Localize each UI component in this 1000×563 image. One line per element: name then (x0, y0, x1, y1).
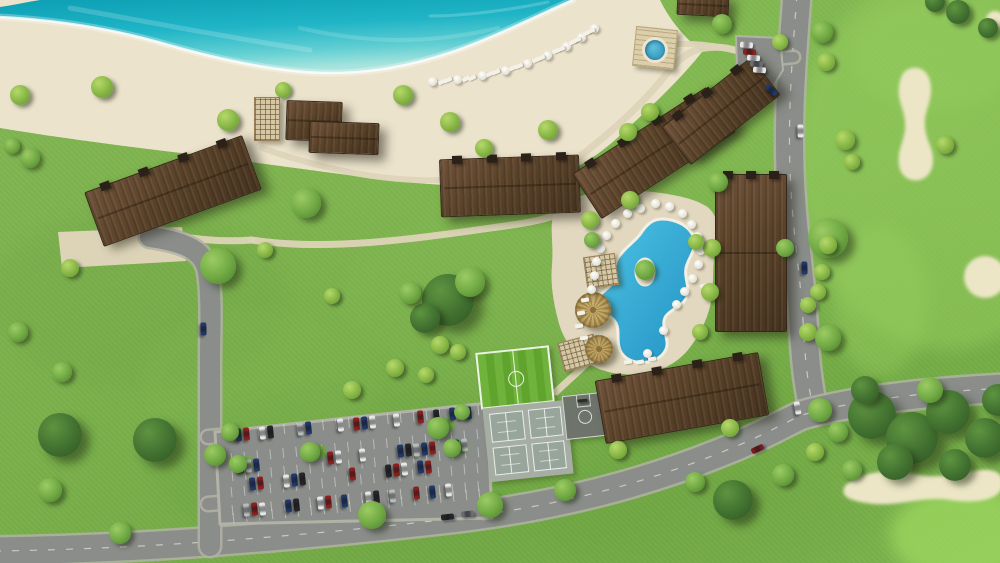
tree (877, 444, 913, 480)
parked-car (396, 444, 403, 458)
chimney (138, 166, 150, 177)
tree (109, 522, 131, 544)
tree (91, 76, 113, 98)
tree (772, 464, 794, 486)
chimney (610, 373, 621, 383)
sand-bunker (843, 470, 1000, 505)
parked-car (424, 460, 431, 474)
tree (609, 441, 627, 459)
palapa-umbrella (585, 335, 613, 363)
beach-umbrella (428, 77, 437, 86)
parked-car (284, 499, 291, 513)
tree (621, 191, 639, 209)
tree (965, 418, 1000, 458)
parked-car (428, 441, 435, 455)
parked-car (416, 410, 423, 424)
tennis-court (492, 444, 528, 476)
parked-car (290, 473, 297, 487)
parked-car (258, 426, 265, 440)
tree (393, 85, 413, 105)
parked-car (358, 448, 365, 462)
chimney (216, 138, 228, 149)
parked-car (444, 483, 451, 497)
tree (229, 455, 247, 473)
parked-car (242, 427, 249, 441)
tree (939, 449, 971, 481)
tree (688, 234, 704, 250)
chimney (732, 352, 743, 362)
tree (410, 303, 440, 333)
tree (200, 248, 236, 284)
chimney (556, 152, 566, 160)
chimney (177, 152, 189, 163)
pool-umbrella (651, 199, 660, 208)
tree (455, 267, 485, 297)
parked-car (256, 476, 263, 490)
tree (917, 377, 943, 403)
pool-umbrella (672, 300, 681, 309)
tree (851, 376, 879, 404)
tree (701, 283, 719, 301)
parked-car (388, 489, 395, 503)
tree (133, 418, 177, 462)
golf-fairway-patch (832, 225, 928, 375)
parked-car (304, 421, 311, 435)
hot-tub (642, 37, 668, 63)
building-beach-pavilion-b (308, 121, 379, 155)
tennis-court (489, 410, 525, 442)
soccer-field (475, 345, 555, 409)
parked-car (412, 443, 419, 457)
parked-car (348, 467, 355, 481)
pool-umbrella (590, 271, 599, 280)
parked-car (752, 67, 765, 74)
tree (721, 419, 739, 437)
tree (221, 423, 239, 441)
tree (685, 472, 705, 492)
wood-lattice-deck (583, 253, 619, 289)
pool-umbrella (602, 231, 611, 240)
pool-umbrella (623, 209, 632, 218)
chimney (691, 359, 702, 369)
soccer-center-circle (507, 370, 525, 388)
tree (217, 109, 239, 131)
tree (692, 324, 708, 340)
tree (204, 444, 226, 466)
tree (817, 53, 835, 71)
parked-car (797, 124, 803, 137)
tree (343, 381, 361, 399)
parked-car (334, 450, 341, 464)
parked-car (324, 495, 331, 509)
tree (708, 172, 728, 192)
tree (4, 138, 20, 154)
parked-car (292, 498, 299, 512)
pool-umbrella (680, 287, 689, 296)
roof-ridge (444, 183, 576, 190)
parked-car (416, 460, 423, 474)
building-beach-lodge-central (439, 155, 581, 218)
parked-car (248, 477, 255, 491)
tree (358, 501, 386, 529)
parked-car (392, 463, 399, 477)
pool-umbrella (592, 257, 601, 266)
pool-umbrella (694, 260, 703, 269)
parked-car (352, 417, 359, 431)
wood-lattice-deck (254, 97, 280, 141)
tree (772, 34, 788, 50)
tree (800, 297, 816, 313)
tennis-court (531, 440, 567, 472)
tree (619, 123, 637, 141)
tree (291, 188, 321, 218)
tree (324, 288, 340, 304)
beach-umbrella (453, 75, 462, 84)
tree (427, 417, 449, 439)
tree (538, 120, 558, 140)
roof-ridge (311, 136, 376, 140)
parked-car (340, 494, 347, 508)
pool-umbrella (587, 285, 596, 294)
chimney (99, 181, 111, 192)
parked-car (298, 472, 305, 486)
palapa-cap (596, 346, 602, 352)
tree (806, 443, 824, 461)
parked-car (460, 510, 474, 517)
parked-car (242, 503, 249, 517)
tree (584, 232, 600, 248)
parked-car (250, 502, 257, 516)
tree (275, 82, 291, 98)
palapa-cap (590, 307, 596, 313)
tree (477, 492, 503, 518)
chimney (651, 366, 662, 376)
tree (936, 136, 954, 154)
parked-car (360, 416, 367, 430)
tree (713, 480, 753, 520)
tree (300, 442, 320, 462)
tree (819, 236, 837, 254)
building-pool-lodge-east (715, 174, 787, 332)
tennis-court (527, 406, 563, 438)
pool-umbrella (665, 202, 674, 211)
basketball-center-circle (577, 409, 592, 424)
tree (52, 362, 72, 382)
tree (38, 413, 82, 457)
tree (635, 260, 655, 280)
beach-umbrella (523, 59, 532, 68)
parked-car (420, 442, 427, 456)
parked-car (336, 418, 343, 432)
tree (450, 344, 466, 360)
roof-ridge (717, 252, 784, 254)
parked-car (316, 496, 323, 510)
tree (828, 422, 848, 442)
chimney (521, 153, 531, 161)
tree (554, 479, 576, 501)
parked-car (200, 322, 206, 335)
roof-ridge (604, 383, 759, 412)
tree (38, 478, 62, 502)
parked-car (266, 425, 273, 439)
tree (475, 139, 493, 157)
tree (946, 0, 970, 24)
parked-car (460, 438, 467, 452)
parked-car (392, 413, 399, 427)
tree (776, 239, 794, 257)
parked-car (412, 486, 419, 500)
chimney (452, 156, 462, 164)
pool-umbrella (659, 326, 668, 335)
parked-car (368, 415, 375, 429)
tree (978, 18, 998, 38)
parked-car (252, 458, 259, 472)
parked-car (440, 513, 454, 520)
tree (20, 148, 40, 168)
pool-umbrella (678, 209, 687, 218)
parked-car (326, 451, 333, 465)
tree (844, 154, 860, 170)
parked-car (384, 464, 391, 478)
tree (703, 239, 721, 257)
parked-car (258, 502, 265, 516)
chimney (769, 171, 779, 179)
roof-ridge (679, 3, 727, 8)
tennis-courts (482, 400, 573, 482)
pool-umbrella (611, 219, 620, 228)
tree (10, 85, 30, 105)
tree (431, 336, 449, 354)
tree (399, 282, 421, 304)
pool-umbrella (688, 274, 697, 283)
beach-umbrella (478, 71, 487, 80)
tree (811, 21, 833, 43)
tree (814, 264, 830, 280)
tree (712, 14, 732, 34)
tree (440, 112, 460, 132)
parked-car (801, 261, 807, 274)
parked-car (428, 485, 435, 499)
parked-car (296, 422, 303, 436)
parked-car (404, 443, 411, 457)
tree (815, 325, 841, 351)
tree (8, 322, 28, 342)
chimney (746, 171, 756, 179)
resort-site-plan (0, 0, 1000, 563)
tree (581, 211, 599, 229)
tree (835, 130, 855, 150)
tree (386, 359, 404, 377)
tree (842, 460, 862, 480)
pool-umbrella (687, 220, 696, 229)
parked-car (739, 42, 752, 49)
tree (443, 439, 461, 457)
tree (257, 242, 273, 258)
tree (808, 398, 832, 422)
tree (418, 367, 434, 383)
parked-car (282, 474, 289, 488)
tree (641, 103, 659, 121)
tree (61, 259, 79, 277)
parked-car (400, 462, 407, 476)
tree (454, 404, 470, 420)
